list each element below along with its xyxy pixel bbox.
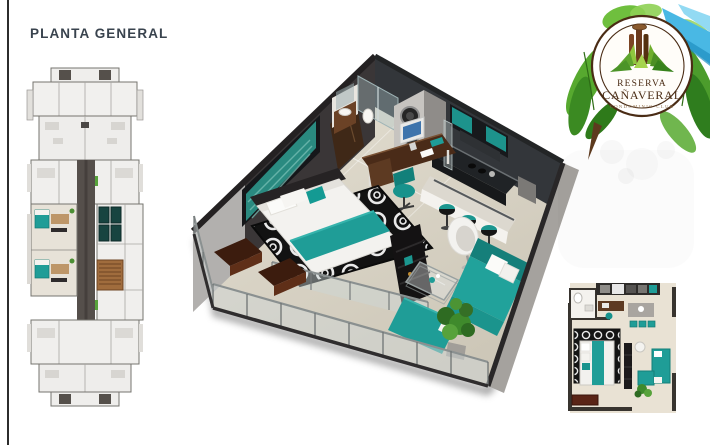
logo-name-bottom: CAÑAVERAL (602, 88, 682, 102)
logo-tagline: CONDOMINIO CLUB (610, 104, 675, 109)
plan-bathroom (570, 289, 596, 319)
plan-tv-unit (624, 343, 632, 389)
plan-bedroom (574, 329, 620, 385)
logo-badge: RESERVA CAÑAVERAL CONDOMINIO CLUB (592, 16, 692, 116)
plan-kitchen (596, 283, 660, 295)
plan-bench (572, 395, 598, 405)
background-watermark (558, 150, 694, 268)
apartment-2d-plan (568, 281, 680, 417)
plan-dining-island (628, 303, 655, 327)
plan-egg-chair (635, 342, 645, 352)
brochure-page: PLANTA GENERAL (0, 0, 710, 445)
